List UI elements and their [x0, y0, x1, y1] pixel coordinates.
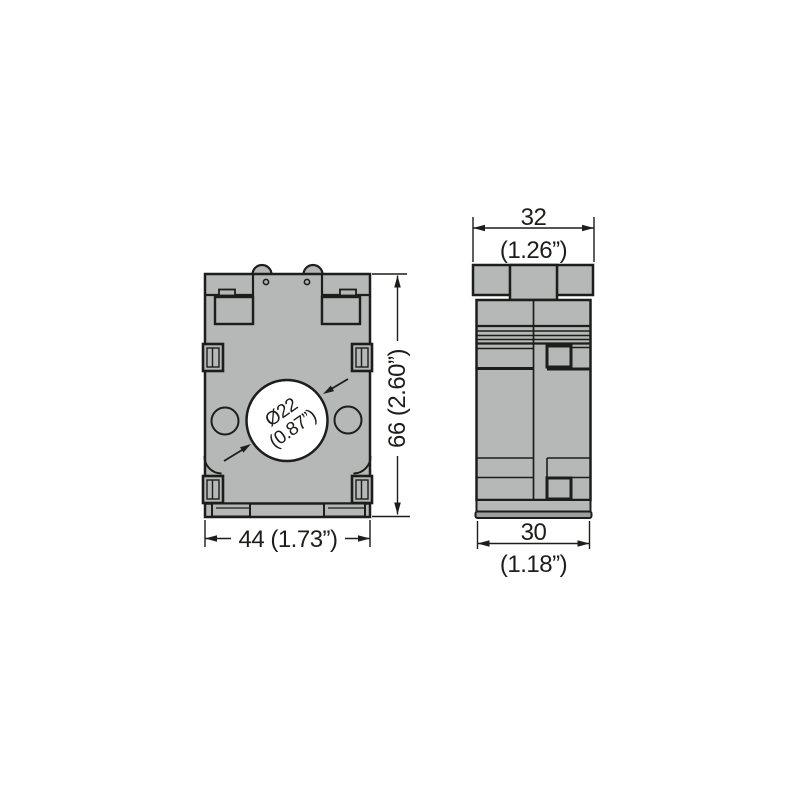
- technical-drawing-page: Ø22 (0.87”) 44 (1: [0, 0, 800, 800]
- cap-middle-block: [510, 265, 557, 300]
- dim-front-height: 66 (2.60”): [372, 274, 411, 517]
- side-hole-right: [335, 407, 362, 434]
- dim-side-bottom-in: (1.18”): [500, 551, 567, 578]
- dimensional-drawing: Ø22 (0.87”) 44 (1: [0, 0, 800, 800]
- dim-side-bottom-mm: 30: [521, 519, 547, 546]
- side-base-strip: [476, 512, 592, 519]
- side-hole-left: [212, 408, 239, 435]
- foot-tab-right: [324, 504, 365, 517]
- dim-front-width-label: 44 (1.73”): [238, 526, 337, 553]
- dim-side-top-mm: 32: [521, 204, 547, 231]
- clamp-mid-right: [352, 344, 372, 371]
- side-view: 32 (1.26”) 30 (1.18”): [473, 204, 594, 578]
- bump-hole-right: [304, 279, 309, 284]
- dim-side-bottom-width: 30 (1.18”): [478, 519, 590, 578]
- clamp-mid-left: [203, 344, 223, 371]
- top-left-tab: [219, 290, 235, 296]
- clamp-bottom-left: [203, 476, 223, 503]
- dim-side-top-in: (1.26”): [500, 237, 567, 264]
- side-base: [477, 500, 591, 512]
- side-upper-latch: [547, 346, 571, 367]
- dim-front-height-label: 66 (2.60”): [384, 349, 411, 448]
- front-view: Ø22 (0.87”) 44 (1: [203, 265, 411, 553]
- clamp-bottom-right: [352, 476, 372, 503]
- top-right-tab: [340, 290, 356, 296]
- side-lower-latch: [547, 478, 571, 499]
- bump-hole-left: [263, 279, 268, 284]
- dim-front-width: 44 (1.73”): [205, 520, 370, 553]
- foot-tab-left: [212, 504, 250, 517]
- dim-side-top-width: 32 (1.26”): [473, 204, 594, 264]
